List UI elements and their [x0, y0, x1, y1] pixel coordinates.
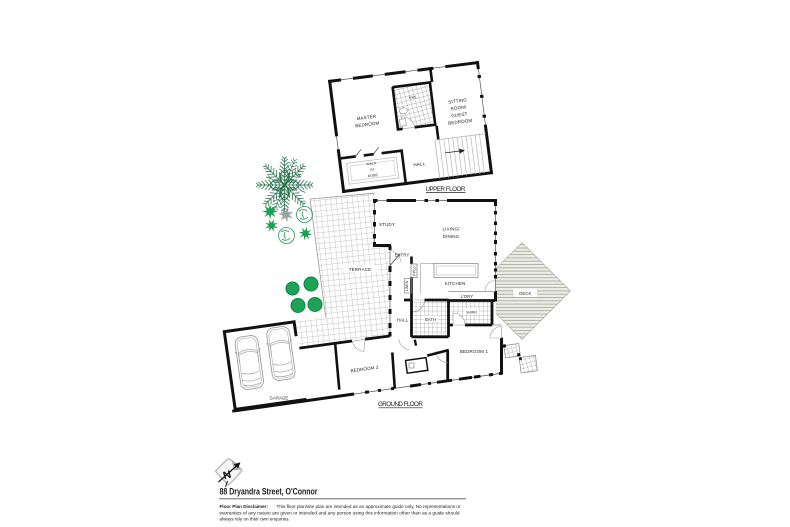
svg-text:DINING: DINING	[443, 234, 460, 239]
svg-text:ENTRY: ENTRY	[395, 253, 410, 258]
svg-text:SHWR: SHWR	[466, 310, 477, 314]
svg-text:BATH: BATH	[425, 317, 436, 322]
svg-text:GROUND FLOOR: GROUND FLOOR	[378, 401, 423, 408]
svg-text:BEDROOM 2: BEDROOM 2	[350, 365, 379, 374]
svg-text:88 Dryandra Street, O'Connor: 88 Dryandra Street, O'Connor	[220, 487, 318, 497]
svg-text:KITCHEN: KITCHEN	[445, 281, 466, 286]
svg-text:HALL: HALL	[397, 318, 409, 323]
svg-text:STUDY: STUDY	[379, 222, 395, 227]
svg-text:L'DRY: L'DRY	[461, 294, 474, 299]
svg-text:GARAGE: GARAGE	[270, 395, 289, 400]
svg-text:always rely on their own enqui: always rely on their own enquiries.	[220, 517, 290, 522]
svg-text:BEDROOM 1: BEDROOM 1	[460, 349, 489, 354]
svg-text:Floor Plan Disclaimer:This flo: Floor Plan Disclaimer:This floor plan/si…	[220, 504, 461, 509]
svg-text:F'PLC: F'PLC	[412, 266, 416, 276]
svg-text:LINEN: LINEN	[405, 280, 409, 291]
svg-text:DECK: DECK	[519, 291, 531, 296]
svg-text:TERRACE: TERRACE	[349, 267, 372, 272]
svg-text:LIVING/: LIVING/	[442, 227, 460, 232]
svg-text:warranties of any nature are g: warranties of any nature are given or in…	[220, 510, 460, 515]
svg-text:UPPER FLOOR: UPPER FLOOR	[426, 186, 466, 193]
